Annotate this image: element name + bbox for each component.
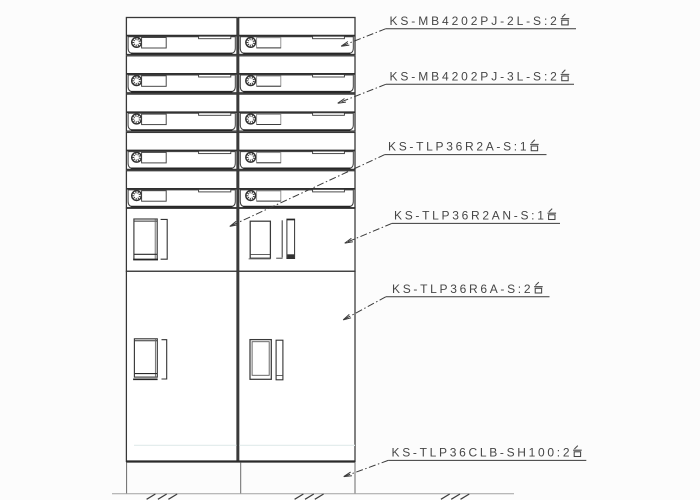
svg-text:KS-TLP36R2A-S:1: KS-TLP36R2A-S:1 (388, 140, 529, 154)
svg-text:KS-MB4202PJ-3L-S:2: KS-MB4202PJ-3L-S:2 (390, 70, 560, 84)
svg-text:KS-TLP36R2AN-S:1: KS-TLP36R2AN-S:1 (394, 209, 547, 223)
svg-text:KS-MB4202PJ-2L-S:2: KS-MB4202PJ-2L-S:2 (390, 14, 560, 28)
svg-text:KS-TLP36R6A-S:2: KS-TLP36R6A-S:2 (392, 282, 533, 296)
svg-text:KS-TLP36CLB-SH100:2: KS-TLP36CLB-SH100:2 (392, 446, 573, 460)
